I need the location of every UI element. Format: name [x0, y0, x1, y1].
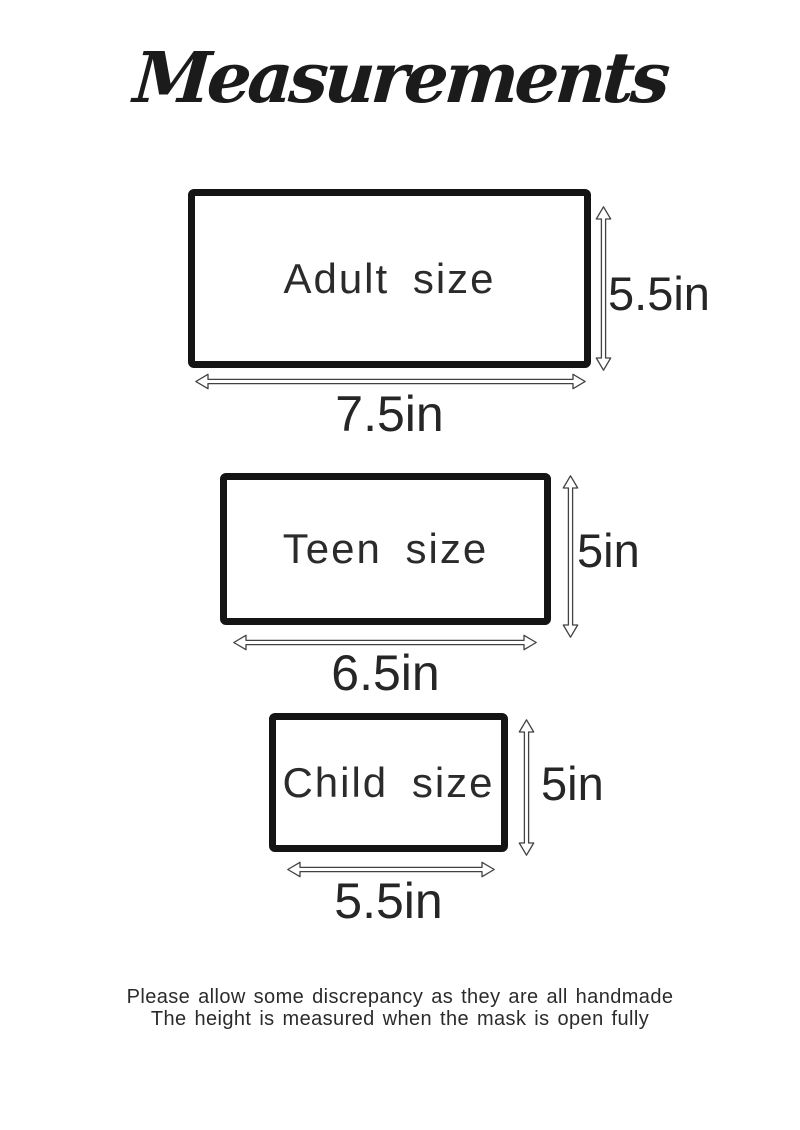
teen-size-label: Teen size	[283, 525, 488, 573]
disclaimer: Please allow some discrepancy as they ar…	[0, 986, 800, 1030]
child-height-value: 5in	[541, 760, 604, 807]
page-title: Measurements	[0, 36, 800, 119]
child-size-label: Child size	[282, 759, 494, 807]
adult-height-value: 5.5in	[608, 270, 710, 317]
adult-width-value: 7.5in	[188, 389, 591, 439]
disclaimer-line-1: Please allow some discrepancy as they ar…	[0, 986, 800, 1008]
adult-size-label: Adult size	[283, 255, 495, 303]
teen-width-value: 6.5in	[220, 648, 551, 698]
child-width-value: 5.5in	[269, 876, 508, 926]
disclaimer-line-2: The height is measured when the mask is …	[0, 1008, 800, 1030]
adult-size-box: Adult size	[188, 189, 591, 368]
teen-height-value: 5in	[577, 527, 640, 574]
double-arrow-vertical-icon	[518, 719, 535, 856]
child-size-box: Child size	[269, 713, 508, 852]
measurements-infographic: Measurements Adult size 5.5in 7.5in Teen…	[0, 0, 800, 1130]
teen-size-box: Teen size	[220, 473, 551, 625]
